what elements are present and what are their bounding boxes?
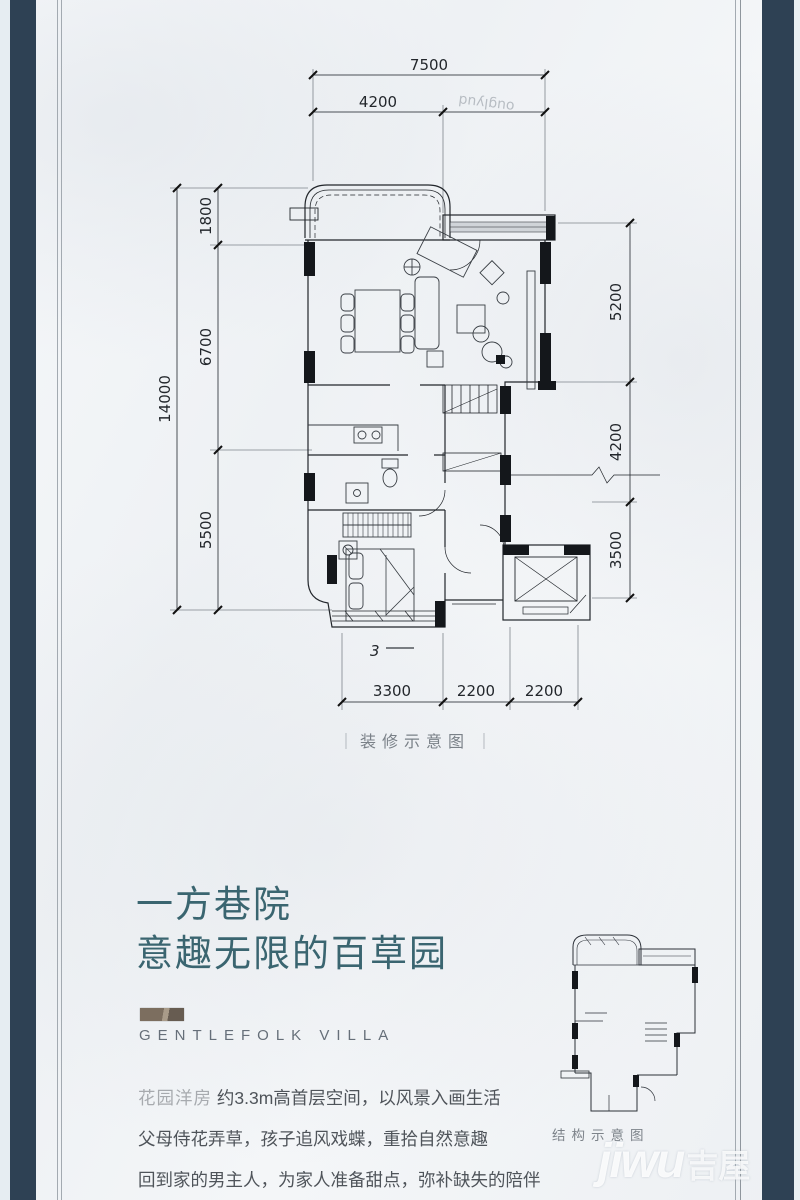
dim-right-seg-1: 4200 bbox=[607, 423, 625, 461]
right-divider-line bbox=[735, 0, 741, 1200]
plan-note: 3 bbox=[370, 642, 380, 660]
dim-bottom-seg-1: 2200 bbox=[457, 682, 495, 700]
plan-furniture bbox=[308, 227, 535, 621]
brand-logo-image bbox=[140, 1008, 184, 1021]
dim-bottom-seg-0: 3300 bbox=[373, 682, 411, 700]
watermark-artifact: ouglyud bbox=[458, 92, 516, 115]
dim-right-seg-2: 3500 bbox=[607, 531, 625, 569]
dim-left-seg-2: 5500 bbox=[197, 511, 215, 549]
caption-left-bar: ｜ bbox=[338, 734, 354, 751]
right-border-bar bbox=[762, 0, 794, 1200]
copy-line1-text: 约3.3m高首层空间，以风景入画生活 bbox=[217, 1088, 501, 1108]
dim-left-total: 14000 bbox=[156, 375, 174, 423]
dim-top-total: 7500 bbox=[410, 56, 448, 74]
dim-right-seg-0: 5200 bbox=[607, 283, 625, 321]
plan-wall-columns bbox=[304, 216, 590, 627]
headline-line1: 一方巷院 bbox=[136, 880, 448, 929]
plan-walls bbox=[290, 185, 660, 627]
dim-top-left: 4200 bbox=[359, 93, 397, 111]
watermark-suffix-text: 吉屋 bbox=[686, 1148, 750, 1184]
caption-right-bar: ｜ bbox=[476, 734, 492, 751]
copy-line3: 回到家的男主人，为家人准备甜点，弥补缺失的陪伴 bbox=[138, 1160, 578, 1200]
headline-line2: 意趣无限的百草园 bbox=[136, 929, 448, 978]
dim-bottom-seg-2: 2200 bbox=[525, 682, 563, 700]
copy-line2: 父母侍花弄草，孩子追风戏蝶，重拾自然意趣 bbox=[138, 1119, 578, 1160]
left-border-bar bbox=[10, 0, 36, 1200]
floorplan-drawing: 7500 4200 ouglyud 14000 1800 6700 5500 bbox=[140, 55, 660, 765]
copy-line1-prefix: 花园洋房 bbox=[138, 1088, 212, 1108]
dimension-top bbox=[309, 69, 549, 213]
plan-caption: ｜装修示意图｜ bbox=[290, 728, 540, 752]
right-edge-strip bbox=[794, 0, 800, 1200]
marketing-copy: 花园洋房 约3.3m高首层空间，以风景入画生活 父母侍花弄草，孩子追风戏蝶，重拾… bbox=[138, 1078, 578, 1200]
left-divider-line bbox=[57, 0, 62, 1200]
structure-diagram bbox=[545, 925, 730, 1125]
left-edge-strip bbox=[0, 0, 10, 1200]
brand-name: GENTLEFOLK VILLA bbox=[139, 1027, 395, 1044]
headline: 一方巷院 意趣无限的百草园 bbox=[136, 880, 448, 978]
watermark-logo-text: jiwu bbox=[598, 1135, 683, 1188]
copy-line1: 花园洋房 约3.3m高首层空间，以风景入画生活 bbox=[138, 1078, 578, 1119]
listing-floorplan-page: 7500 4200 ouglyud 14000 1800 6700 5500 bbox=[0, 0, 800, 1200]
site-watermark: jiwu吉屋 bbox=[598, 1134, 800, 1189]
plan-caption-text: 装修示意图 bbox=[360, 734, 470, 751]
dim-left-seg-1: 6700 bbox=[197, 328, 215, 366]
dim-left-seg-0: 1800 bbox=[197, 197, 215, 235]
